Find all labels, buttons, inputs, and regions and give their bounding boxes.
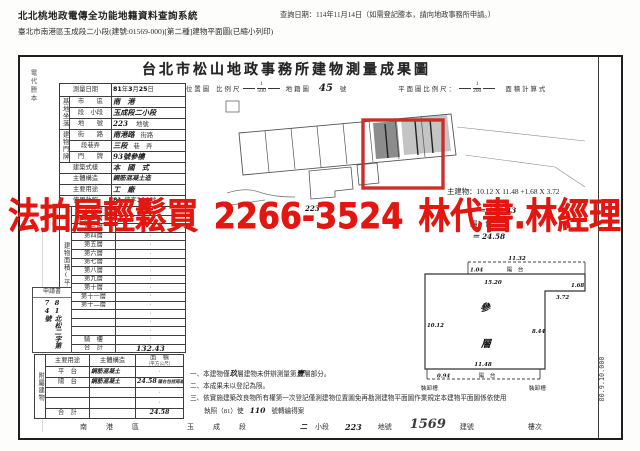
- survey-document-sheet: 台北市松山地政事務所建物測量成果圖 電代謄本 80.9.10.000 位置圖 比…: [18, 55, 623, 440]
- application-number-box: 申請書 81北松二字第74號: [32, 287, 72, 353]
- attached-area: ·: [136, 398, 184, 408]
- boundary-line: [465, 155, 585, 187]
- bottom-lot-number: 223: [345, 422, 362, 432]
- floor-area-value: ·: [116, 327, 186, 336]
- note-3: 三、依實施建築改良物所有權第一次登記僅測建物位置圖免再勘測建物平面圖作業規定本建…: [190, 393, 602, 405]
- attached-use-header: 主要用途: [46, 355, 90, 367]
- attached-row: 陽 台鋼筋混凝土24.58陽台包括雨遮: [35, 377, 184, 387]
- floor-area-value: ·: [116, 292, 186, 301]
- attached-area-header: 面 積 （平方公尺）: [136, 355, 184, 367]
- attached-use: 平 台: [46, 367, 90, 377]
- fraction-bar: [243, 88, 255, 89]
- structure-label: 主體構造: [60, 174, 112, 185]
- floor-designation-char2: 層: [480, 338, 493, 350]
- boundary-line: [457, 127, 585, 141]
- floor-row: ·: [60, 318, 186, 327]
- notes-block: 一、本建物僅玖層建物未併辦測量第壹層部分。 二、本成果未以登記為限。 三、依實施…: [190, 368, 602, 418]
- lot-number-label: 地 號: [70, 119, 112, 130]
- adjacent-parcel: [357, 163, 379, 185]
- section-label: 段 小段: [70, 108, 112, 119]
- floor-row: ·: [60, 310, 186, 319]
- floor-area-value: ·: [116, 301, 186, 310]
- lane-unit: 巷 弄: [133, 143, 152, 150]
- floor-row: 第七層·: [60, 258, 186, 267]
- note-4-license-no: 110: [250, 406, 266, 415]
- dim-notch-height: 1.68: [571, 283, 584, 289]
- building-style-value: 本 國 式: [113, 163, 149, 172]
- floor-area-value: ·: [116, 267, 186, 276]
- attached-row: ·: [35, 398, 184, 408]
- floor-label: 第十二層: [72, 301, 116, 310]
- bottom-building-label: 建號: [460, 422, 474, 432]
- floor-label: 第五層: [72, 241, 116, 250]
- street-unit: 街路: [141, 132, 154, 139]
- dim-right: 8.44: [532, 329, 545, 335]
- bottom-building-number: 1569: [410, 417, 446, 432]
- city-district-value: 南 港: [113, 97, 135, 106]
- floor-label: 合 計: [72, 344, 116, 353]
- note-1: 一、本建物僅玖層建物未併辦測量第壹層部分。: [190, 368, 602, 381]
- lot-number-value: 223: [113, 119, 128, 128]
- floor-row: ·: [60, 327, 186, 336]
- floor-label: 第十層: [72, 284, 116, 293]
- door-plate-value: 93號參樓: [113, 152, 145, 161]
- door-plate-label: 門 牌: [70, 152, 112, 163]
- survey-date-label: 測量日期: [60, 84, 112, 97]
- dim-inner-top: 15.20: [484, 280, 502, 286]
- lane-alley-label: 段巷弄: [70, 141, 112, 152]
- floor-area-value: 132.43: [116, 344, 186, 353]
- page: 北北桃地政電傳全功能地籍資料查詢系統 查詢日期：114年11月14日（如需登記謄…: [0, 0, 640, 451]
- fraction-bar: [268, 88, 280, 89]
- attached-structures-table: 附屬建物 主要用途 主體構造 面 積 （平方公尺） 平 台鋼筋混凝土·陽 台鋼筋…: [34, 354, 184, 419]
- attached-area-note: 陽台包括雨遮: [158, 380, 184, 385]
- query-date: 查詢日期：114年11月14日（如需登記謄本，請向地政事務所申請。）: [280, 10, 495, 20]
- scale-row: 位置圖 比例尺 1 500 地籍圖 45 號 平面圖比例尺： 1 200 面積計…: [186, 81, 596, 95]
- system-title: 北北桃地政電傳全功能地籍資料查詢系統: [18, 8, 198, 22]
- bottom-section: 玉 成 段: [187, 422, 252, 432]
- bottom-floor-label: 樓次: [528, 422, 542, 432]
- attached-use: [46, 388, 90, 398]
- plan-scale-label: 平面圖比例尺：: [398, 84, 457, 93]
- floor-row: 第六層·: [60, 249, 186, 258]
- cadastre-sheet-number: 45: [319, 83, 333, 94]
- floor-row: 合 計132.43: [60, 344, 186, 353]
- note-1-level: 壹: [297, 369, 305, 378]
- cadastre-unit: 號: [340, 84, 346, 93]
- location-scale-fraction: 1 500: [257, 82, 265, 95]
- bottom-district: 南 港 區: [80, 422, 145, 432]
- building-address-group-label: 建物門牌: [60, 130, 70, 163]
- survey-date-value: 81年3月25日: [112, 84, 186, 97]
- floor-label: 第六層: [72, 249, 116, 258]
- document-title: 台北市松山地政事務所建物測量成果圖: [142, 59, 431, 79]
- balcony-top-label: 陽 台: [507, 266, 524, 274]
- day-unit: 日: [148, 86, 154, 93]
- floor-designation-char1: 參: [480, 302, 491, 314]
- scale-denominator: 200: [473, 88, 481, 94]
- area-header-unit: （平方公尺）: [137, 361, 182, 366]
- attached-structure: [90, 388, 136, 398]
- site-location-group-label: 基地坐落: [60, 97, 70, 130]
- floor-area-value: ·: [116, 241, 186, 250]
- floor-row: 第九層·: [60, 275, 186, 284]
- floor-area-value: ·: [116, 310, 186, 319]
- dim-notch-width: 3.72: [556, 295, 569, 301]
- floor-label: [72, 318, 116, 327]
- floor-label: [72, 327, 116, 336]
- structure-value: 鋼筋混凝土造: [113, 175, 151, 182]
- document-subtitle: 臺北市南港區玉成段二小段(建號:01569-000)[第二種]建物平面圖(已縮小…: [18, 26, 273, 37]
- application-label: 申請書: [33, 288, 71, 298]
- floor-row: 第八層·: [60, 267, 186, 276]
- building-style-label: 建築式樣: [60, 163, 112, 174]
- lot-unit: 地號: [136, 121, 149, 128]
- attached-structure: 鋼筋混凝土: [90, 377, 136, 387]
- floor-label: [72, 310, 116, 319]
- attached-area: 24.58陽台包括雨遮: [136, 377, 184, 387]
- floor-label: 第八層: [72, 267, 116, 276]
- attached-area: ·: [136, 367, 184, 377]
- left-margin-note: 電代謄本: [27, 69, 37, 103]
- floor-label: 第十一層: [72, 292, 116, 301]
- floor-label: 騎 樓: [72, 335, 116, 344]
- attached-structure-header: 主體構造: [90, 355, 136, 367]
- location-map-label: 位置圖: [186, 84, 211, 93]
- attached-group-label: 附屬建物: [35, 355, 46, 419]
- attached-use: 陽 台: [46, 377, 90, 387]
- attached-row: 平 台鋼筋混凝土·: [35, 367, 184, 377]
- attached-row: ·: [35, 388, 184, 398]
- attached-area: ·: [136, 388, 184, 398]
- attached-use: [46, 398, 90, 408]
- floor-plan-outline: [425, 274, 585, 369]
- fraction-bar: [483, 88, 495, 89]
- scale-label: 比例尺: [216, 84, 241, 93]
- watermark: 法拍屋輕鬆買 2266-3524 林代書.林經理: [8, 194, 621, 240]
- survey-day: 25: [139, 86, 148, 93]
- floor-row: 第十層·: [60, 284, 186, 293]
- cadastre-label: 地籍圖: [286, 84, 311, 93]
- bottom-lot-label: 地號: [378, 422, 392, 432]
- building-info-table: 測量日期 81年3月25日 基地坐落 市 區 南 港 段 小段 玉成段二小段 地…: [59, 83, 186, 207]
- bottom-subsection-no: 二: [300, 422, 307, 432]
- main-use-value: 工 廠: [113, 185, 135, 194]
- floor-row: 第五層·: [60, 241, 186, 250]
- floor-label: 第七層: [72, 258, 116, 267]
- floor-area-value: ·: [116, 258, 186, 267]
- street-label: 街 路: [70, 130, 112, 141]
- floor-row: 第十一層·: [60, 292, 186, 301]
- street-value: 南港路: [113, 130, 135, 139]
- city-district-label: 市 區: [70, 97, 112, 108]
- lane-value: 三段: [113, 141, 127, 150]
- attached-structure: [90, 398, 136, 408]
- dim-top: 11.32: [508, 256, 526, 262]
- dim-balcony-depth-top: 1.04: [470, 268, 483, 274]
- application-number: 81北松二字第74號: [42, 299, 62, 349]
- floor-area-value: ·: [116, 335, 186, 344]
- note-2: 二、本成果未以登記為限。: [190, 381, 602, 393]
- floor-area-value: ·: [116, 284, 186, 293]
- plan-scale-fraction: 1 200: [473, 82, 481, 95]
- floor-area-value: ·: [116, 275, 186, 284]
- floor-row: 第十二層·: [60, 301, 186, 310]
- dim-left: 10.12: [427, 323, 444, 329]
- area-calc-label: 面積計算式: [505, 84, 547, 93]
- section-value: 玉成段二小段: [113, 108, 156, 117]
- floor-label: 第九層: [72, 275, 116, 284]
- floor-area-value: ·: [116, 318, 186, 327]
- survey-year: 81: [113, 86, 122, 93]
- floor-area-value: ·: [116, 249, 186, 258]
- map-legend-box: [226, 101, 239, 112]
- floor-row: 騎 樓·: [60, 335, 186, 344]
- bottom-subsection-label: 小段: [315, 422, 329, 432]
- attached-structure: 鋼筋混凝土: [90, 367, 136, 377]
- fraction-bar: [459, 88, 471, 89]
- scale-denominator: 500: [257, 88, 265, 94]
- bottom-strip: 南 港 區 玉 成 段 二 小段 223 地號 1569 建號 樓次: [80, 417, 580, 432]
